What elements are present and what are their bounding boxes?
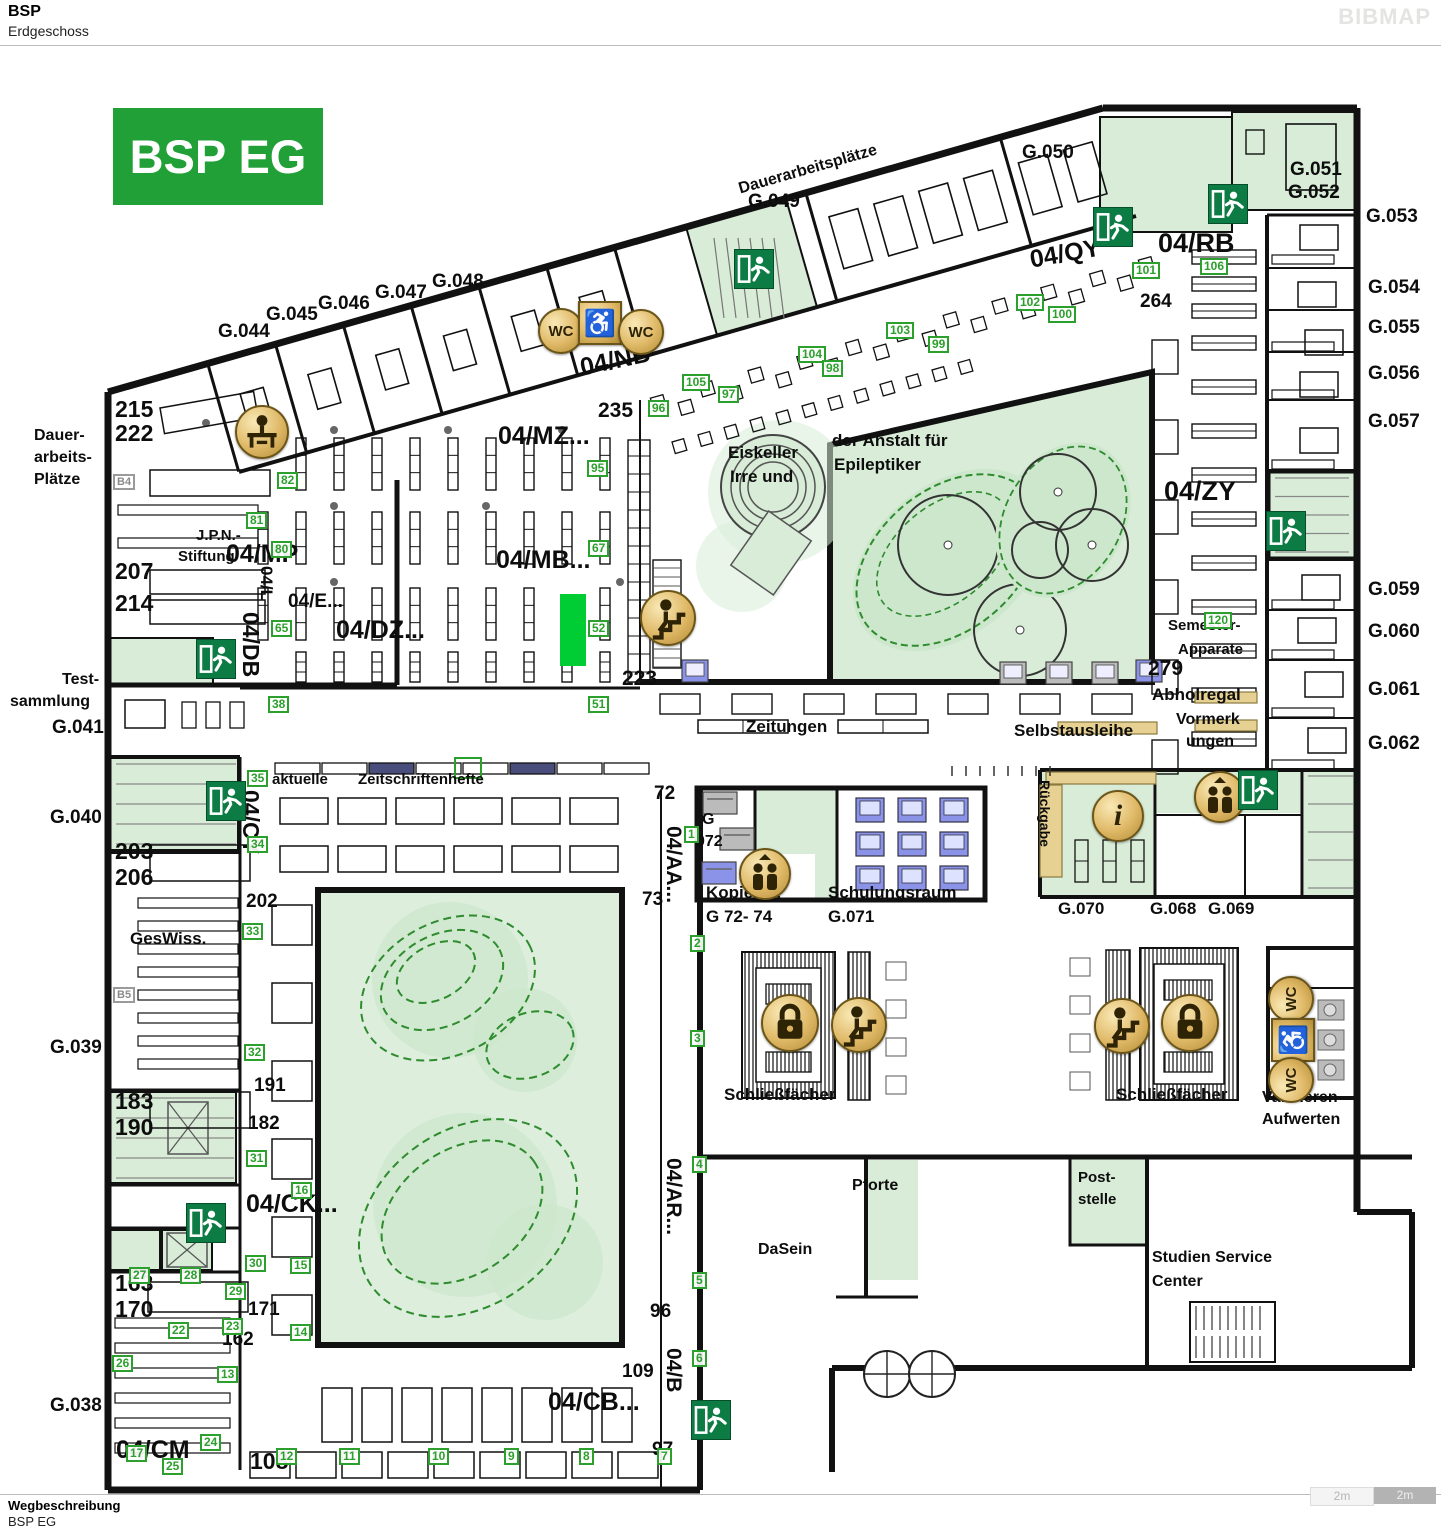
map-label: sammlung — [10, 694, 90, 710]
map-label: G.056 — [1368, 364, 1420, 383]
shelf-marker: 22 — [168, 1322, 189, 1339]
map-scale-bar: 2m 2m — [1310, 1487, 1436, 1504]
map-label: der Anstalt für — [832, 432, 948, 449]
map-label: Test- — [62, 672, 99, 688]
exit-icon — [1093, 207, 1133, 247]
map-label: G.049 — [748, 192, 800, 211]
stairs-icon — [831, 997, 887, 1053]
map-label: 04/AR... — [663, 1158, 684, 1235]
shelf-marker: 14 — [290, 1324, 311, 1341]
shelf-marker: 101 — [1132, 262, 1160, 279]
shelf-marker: 82 — [277, 472, 298, 489]
map-label: stelle — [1078, 1192, 1116, 1207]
shelf-marker: 24 — [200, 1434, 221, 1451]
map-label: Pforte — [852, 1178, 898, 1194]
shelf-marker: 11 — [339, 1448, 360, 1465]
map-label: G.051 — [1290, 160, 1342, 179]
map-label: 207 — [115, 560, 153, 583]
exit-icon — [1238, 770, 1278, 810]
map-label: 203 — [115, 840, 153, 863]
shelf-marker: 13 — [217, 1366, 238, 1383]
map-label: 04/ZY — [1164, 478, 1236, 505]
shelf-marker: 10 — [428, 1448, 449, 1465]
status-bar: Wegbeschreibung BSP EG 2m 2m — [0, 1494, 1441, 1532]
map-label: G.040 — [50, 808, 102, 827]
map-label: 206 — [115, 866, 153, 889]
map-label: G.052 — [1288, 183, 1340, 202]
shelf-marker: 28 — [180, 1267, 201, 1284]
shelf-marker: 31 — [246, 1150, 267, 1167]
map-label: Studien Service — [1152, 1250, 1272, 1266]
shelf-marker: 17 — [126, 1445, 147, 1462]
map-label: G.047 — [375, 283, 427, 302]
map-label: 170 — [115, 1298, 153, 1321]
exit-icon — [734, 249, 774, 289]
map-label: 214 — [115, 592, 153, 615]
shelf-marker: 67 — [588, 540, 609, 557]
scale-segment: 2m — [1374, 1487, 1436, 1504]
shelf-marker: 2 — [690, 935, 705, 952]
map-label: Plätze — [34, 472, 80, 488]
map-label: G.053 — [1366, 207, 1418, 226]
map-label: 04/CB... — [548, 1390, 640, 1415]
shelf-marker: 81 — [246, 512, 267, 529]
shelf-marker: 106 — [1200, 258, 1228, 275]
wheelchair-icon: ♿ — [578, 301, 622, 345]
wc-icon: WC — [618, 309, 664, 355]
shelf-marker: 7 — [657, 1448, 672, 1465]
shelf-marker: 52 — [588, 620, 609, 637]
map-label: DaSein — [758, 1242, 812, 1258]
page-title: BSP — [8, 3, 41, 21]
exit-icon — [206, 781, 246, 821]
map-label: G.044 — [218, 322, 270, 341]
map-label: 182 — [248, 1114, 280, 1133]
map-label: G.057 — [1368, 412, 1420, 431]
shelf-marker: 30 — [245, 1255, 266, 1272]
stairs-icon — [1094, 998, 1150, 1054]
map-label: G.062 — [1368, 734, 1420, 753]
shelf-marker: 98 — [822, 360, 843, 377]
map-label: Aufwerten — [1262, 1112, 1340, 1128]
map-label: G.038 — [50, 1396, 102, 1415]
map-label: G.069 — [1208, 900, 1254, 917]
map-label: aktuelle — [272, 772, 328, 787]
elevator-icon — [739, 848, 791, 900]
shelf-marker: 34 — [247, 836, 268, 853]
map-label: G.070 — [1058, 900, 1104, 917]
shelf-marker: 6 — [692, 1350, 707, 1367]
floor-badge: BSP EG — [113, 108, 323, 205]
map-label: Center — [1152, 1274, 1203, 1290]
map-label: Eiskeller — [728, 444, 798, 461]
shelf-marker: 33 — [242, 923, 263, 940]
map-label: G.045 — [266, 305, 318, 324]
map-label: 109 — [622, 1362, 654, 1381]
reader-icon — [235, 405, 289, 459]
exit-icon — [1208, 184, 1248, 224]
map-label: 171 — [248, 1300, 280, 1319]
shelf-marker: 97 — [718, 386, 739, 403]
map-label: G.054 — [1368, 278, 1420, 297]
map-label: G.041 — [52, 718, 104, 737]
map-label: Schließfächer — [1116, 1086, 1228, 1103]
shelf-marker: 1 — [684, 826, 699, 843]
map-label: 072 — [696, 834, 723, 850]
shelf-marker: 99 — [928, 336, 949, 353]
exit-icon — [186, 1203, 226, 1243]
shelf-marker: 25 — [162, 1458, 183, 1475]
map-label: 202 — [246, 892, 278, 911]
map-label: G.055 — [1368, 318, 1420, 337]
map-label: 191 — [254, 1076, 286, 1095]
highlighted-shelf — [560, 594, 586, 666]
wc-icon: WC — [1268, 976, 1314, 1022]
map-label: 72 — [654, 784, 675, 803]
map-label: G.046 — [318, 294, 370, 313]
floor-plan-map[interactable]: BSP EG G.044G.045G.046G.047G.048G.049Dau… — [0, 0, 1441, 1494]
map-label: 96 — [650, 1302, 671, 1321]
wegbeschreibung-value: BSP EG — [8, 1514, 56, 1529]
map-label: arbeits- — [34, 450, 92, 466]
shelf-marker: 80 — [271, 541, 292, 558]
shelf-marker: 96 — [648, 400, 669, 417]
shelf-marker: 105 — [682, 374, 710, 391]
map-label: Schulungsraum — [828, 884, 956, 901]
map-label: 73 — [642, 890, 663, 909]
lock-icon — [761, 994, 819, 1052]
map-label: GesWiss. — [130, 930, 206, 947]
shelf-marker: 4 — [692, 1156, 707, 1173]
page-subtitle: Erdgeschoss — [8, 23, 89, 39]
map-label: G 72- 74 — [706, 908, 772, 925]
wheelchair-icon: ♿ — [1271, 1018, 1315, 1062]
map-label: 04/RB — [1158, 230, 1235, 257]
map-label: 04/AA... — [663, 826, 684, 903]
shelf-marker: 26 — [112, 1355, 133, 1372]
map-label: 223 — [622, 668, 657, 689]
beacon-marker: B4 — [113, 474, 135, 490]
lock-icon — [1161, 994, 1219, 1052]
map-label: 04/DZ... — [336, 618, 425, 643]
shelf-marker: 95 — [587, 460, 608, 477]
wegbeschreibung-label: Wegbeschreibung — [8, 1498, 120, 1513]
title-bar: BSP Erdgeschoss BIBMAP — [0, 0, 1441, 46]
map-label: G.068 — [1150, 900, 1196, 917]
map-label: Schließfächer — [724, 1086, 836, 1103]
beacon-marker: B5 — [113, 987, 135, 1003]
map-label: 264 — [1140, 292, 1172, 311]
info-icon: i — [1092, 790, 1144, 842]
map-label: 190 — [115, 1116, 153, 1139]
wc-icon: WC — [1268, 1057, 1314, 1103]
map-label: 04/MZ... — [498, 424, 590, 449]
bibmap-logo: BIBMAP — [1338, 4, 1431, 30]
map-label: 04/E... — [288, 592, 343, 611]
shelf-marker: 27 — [129, 1267, 150, 1284]
scale-segment: 2m — [1310, 1487, 1374, 1506]
map-label: 04/DB — [239, 612, 262, 677]
map-label: Irre und — [730, 468, 793, 485]
map-label: Zeitschriftenhefte — [358, 772, 484, 787]
shelf-marker: 8 — [579, 1448, 594, 1465]
map-label: Zeitungen — [746, 718, 827, 735]
map-label: G.060 — [1368, 622, 1420, 641]
map-label: 04/L — [258, 566, 275, 600]
map-label: G — [702, 812, 714, 828]
map-label: G.039 — [50, 1038, 102, 1057]
shelf-marker: 23 — [222, 1318, 243, 1335]
shelf-marker: 5 — [692, 1272, 707, 1289]
shelf-marker: 38 — [268, 696, 289, 713]
shelf-marker: 9 — [504, 1448, 519, 1465]
map-label: 215 — [115, 398, 153, 421]
map-label: Abholregal — [1152, 686, 1241, 703]
shelf-marker: 12 — [276, 1448, 297, 1465]
exit-icon — [1266, 511, 1306, 551]
map-label: Vormerk — [1176, 712, 1240, 728]
map-label: Rückgabe — [1038, 780, 1052, 847]
shelf-marker: 120 — [1204, 612, 1232, 629]
shelf-marker: 102 — [1016, 294, 1044, 311]
map-label: Selbstausleihe — [1014, 722, 1133, 739]
map-label: 04/MB... — [496, 548, 590, 573]
shelf-marker: 35 — [247, 770, 268, 787]
map-label: G.048 — [432, 272, 484, 291]
map-label: 279 — [1148, 658, 1183, 679]
exit-icon — [691, 1400, 731, 1440]
map-label: 222 — [115, 422, 153, 445]
exit-icon — [196, 639, 236, 679]
map-label: 235 — [598, 400, 633, 421]
shelf-marker: 100 — [1048, 306, 1076, 323]
shelf-marker: 65 — [271, 620, 292, 637]
map-label: Post- — [1078, 1170, 1116, 1185]
shelf-marker: 51 — [588, 696, 609, 713]
map-label: Dauer- — [34, 428, 85, 444]
shelf-marker: 3 — [690, 1030, 705, 1047]
map-label: Apparate — [1178, 642, 1243, 657]
map-label: Epileptiker — [834, 456, 921, 473]
map-label: ungen — [1186, 734, 1234, 750]
map-label: 183 — [115, 1090, 153, 1113]
shelf-marker: 103 — [886, 322, 914, 339]
shelf-marker: 15 — [290, 1257, 311, 1274]
shelf-marker: 29 — [225, 1283, 246, 1300]
shelf-marker: 32 — [244, 1044, 265, 1061]
map-label: G.059 — [1368, 580, 1420, 599]
map-label: 04/B — [663, 1348, 684, 1392]
map-label: G.050 — [1022, 143, 1074, 162]
stairs-icon — [640, 590, 696, 646]
map-label: G.071 — [828, 908, 874, 925]
map-label: G.061 — [1368, 680, 1420, 699]
shelf-marker: 16 — [291, 1182, 312, 1199]
